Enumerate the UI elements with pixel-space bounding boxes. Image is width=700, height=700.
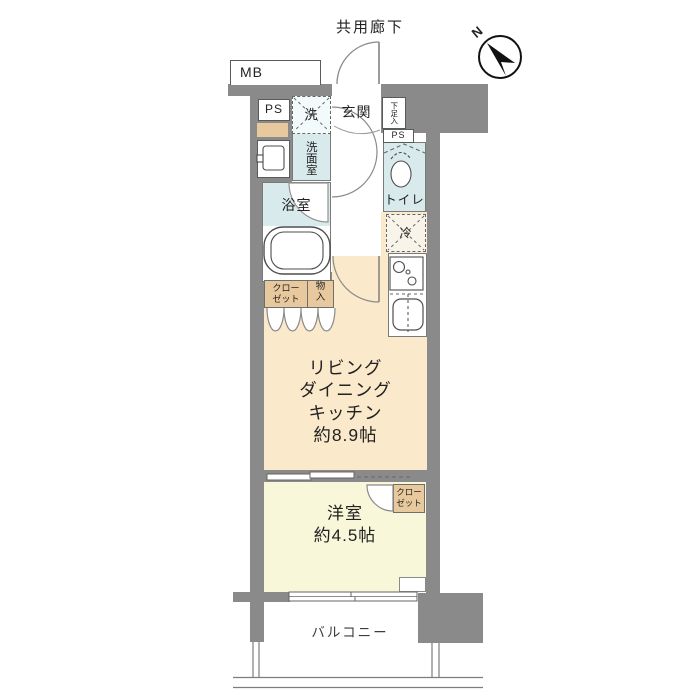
sink-icon <box>393 294 423 332</box>
ldk-door-arc-icon <box>333 256 379 302</box>
bathtub-icon <box>264 227 330 274</box>
balcony-label: バルコニー <box>280 624 420 641</box>
balcony-railing <box>233 642 483 688</box>
floor-plan-canvas: 共用廊下 N MB PS 下足入 PS <box>0 0 700 700</box>
hall-storage-label: 物 入 <box>307 281 334 304</box>
ldk-label: リビング ダイニング キッチン 約8.9帖 <box>264 357 427 447</box>
stove-icon <box>390 257 423 290</box>
sliding-door-partition-icon <box>267 472 412 480</box>
fridge-label: 冷 <box>386 226 426 241</box>
closet-bedroom-label: クロー ゼット <box>393 487 425 508</box>
balcony-window-icon <box>289 592 417 601</box>
toilet-icon <box>391 153 411 188</box>
washer-label: 洗 <box>292 107 331 124</box>
toilet-door-dashed-icon <box>384 144 425 153</box>
corridor-label: 共用廊下 <box>300 18 440 37</box>
genkan-label: 玄関 <box>332 104 381 122</box>
entry-door-arc-icon <box>337 42 379 84</box>
toilet-label: トイレ <box>380 192 429 208</box>
bathroom-label: 浴室 <box>262 197 331 215</box>
washroom-label: 洗面室 <box>303 136 318 180</box>
closet-hall-label: クロー ゼット <box>264 283 308 305</box>
vanity-icon <box>257 146 284 170</box>
bedroom-label: 洋室 約4.5帖 <box>264 503 426 547</box>
north-compass-icon <box>479 36 521 78</box>
folding-doors-icon <box>267 308 335 331</box>
